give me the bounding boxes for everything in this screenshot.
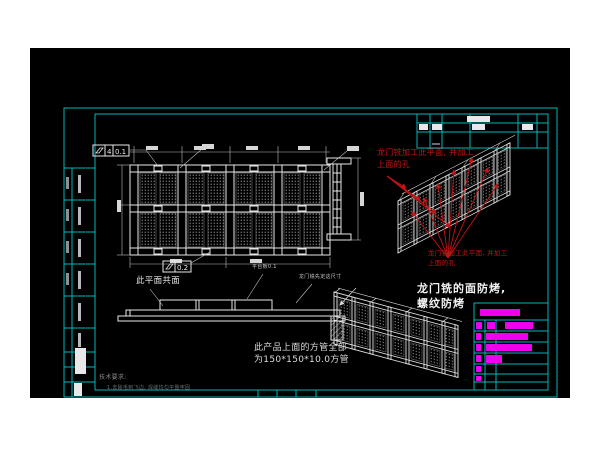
fcf-bottom-value: 0.2 — [177, 264, 188, 272]
cad-viewer-page: 4 0.1 0.2 — [0, 0, 600, 450]
anti-bake-note-line1: 龙门铣的面防烤, — [417, 283, 506, 295]
square-tube-note-line1: 此产品上面的方管全部 — [254, 344, 347, 354]
gantry-mill-note-mid-line1: 龙门铣加工此平面, 并加工 — [428, 250, 508, 257]
coplanar-note: 此平面共面 — [136, 277, 180, 286]
platform-plate-note: 平台板0.1 — [252, 265, 277, 271]
gantry-dim-note: 龙门铣先定这尺寸 — [299, 275, 341, 281]
tech-requirements-title: 技术要求: — [99, 375, 127, 382]
gantry-mill-note-mid-line2: 上面的孔 — [428, 260, 455, 267]
square-tube-note-line2: 为150*150*10.0方管 — [254, 356, 349, 366]
anti-bake-note-line2: 螺纹防烤 — [417, 298, 465, 310]
fcf-top-value: 0.1 — [115, 148, 126, 156]
side-view-dim-text-block — [360, 192, 364, 206]
gantry-mill-note-top-line1: 龙门铣加工此平面, 并加工 — [377, 149, 474, 158]
gantry-mill-note-top-line2: 上面的孔 — [377, 161, 410, 170]
cad-drawing-surface[interactable]: 4 0.1 0.2 — [0, 0, 600, 450]
fcf-top-qty: 4 — [107, 148, 112, 156]
tech-requirements-line1: 1.去除毛刺飞边, 焊缝均匀平整牢固 — [107, 386, 190, 392]
